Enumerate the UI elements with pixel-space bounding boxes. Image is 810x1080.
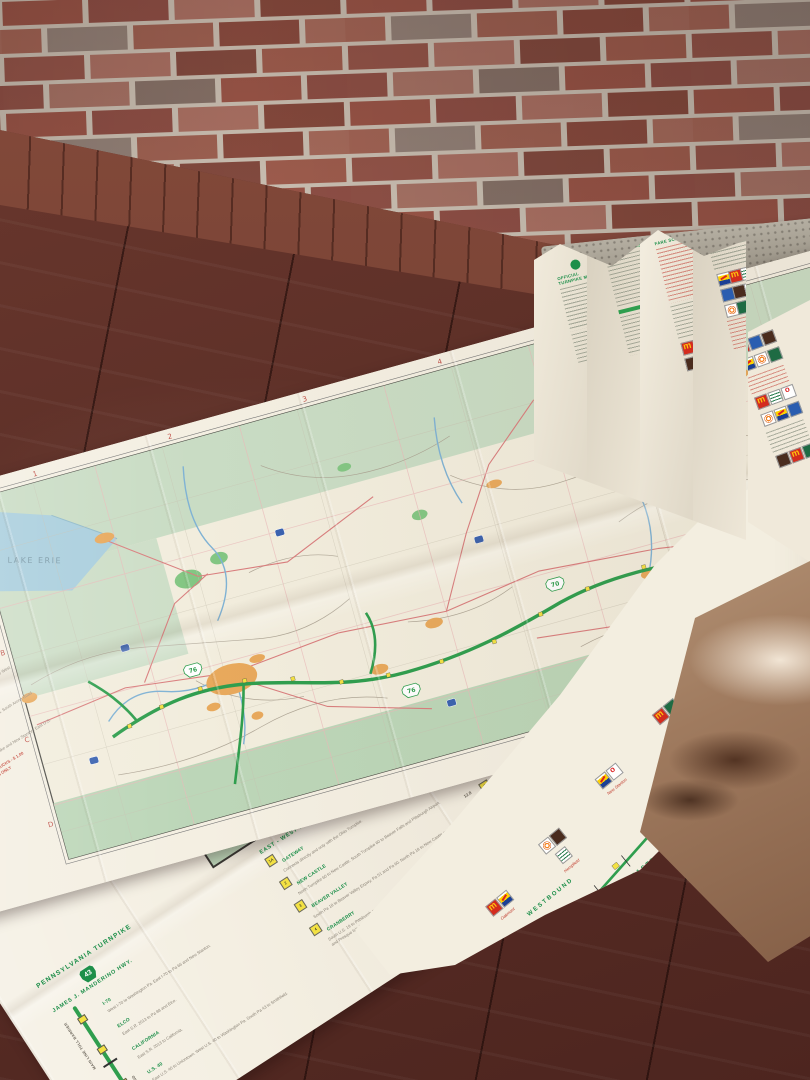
tcby-logo [554, 846, 572, 864]
mcdonalds-logo [727, 268, 743, 284]
turnpike-seal-icon [569, 259, 581, 271]
diagram-label: MAIN LINE TOLL BARRIER [63, 1021, 96, 1069]
manderino-panel: PENNSYLVANIA TURNPIKE 43 JAMES J. MANDER… [35, 861, 324, 1080]
photo-scene: PENNSYLVANIA TURNPIKE 43 JAMES J. MANDER… [0, 0, 810, 1080]
diagram-label: SOUTHBOUND [131, 1074, 151, 1080]
